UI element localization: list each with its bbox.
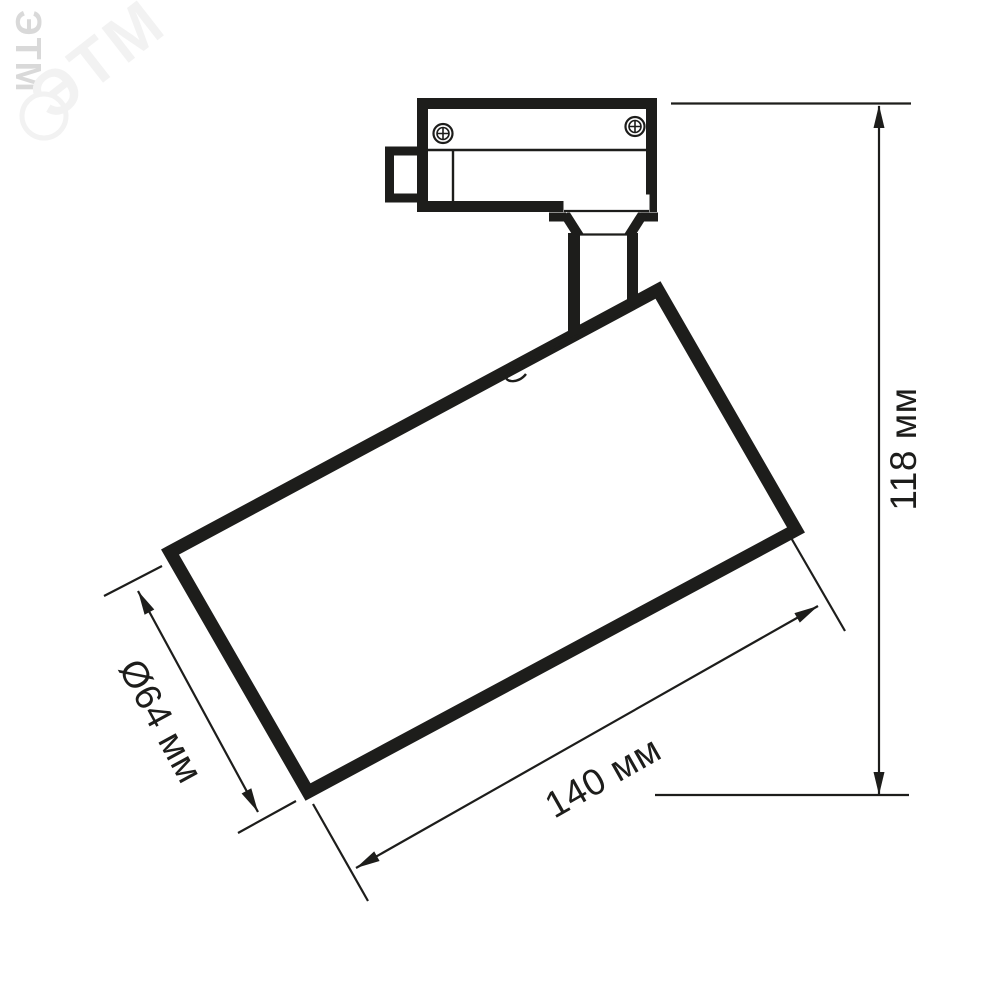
screw-right xyxy=(626,117,645,136)
track-spotlight-dimension-drawing: ЭТМ ЭТМ xyxy=(0,0,1000,1000)
screw-left xyxy=(434,124,453,143)
diagram-page: ЭТМ ЭТМ xyxy=(0,0,1000,1000)
height-dimension-label: 118 мм xyxy=(883,387,924,510)
track-adapter xyxy=(390,104,652,213)
adapter-neck-gap xyxy=(564,195,650,213)
adapter-housing xyxy=(423,104,652,207)
